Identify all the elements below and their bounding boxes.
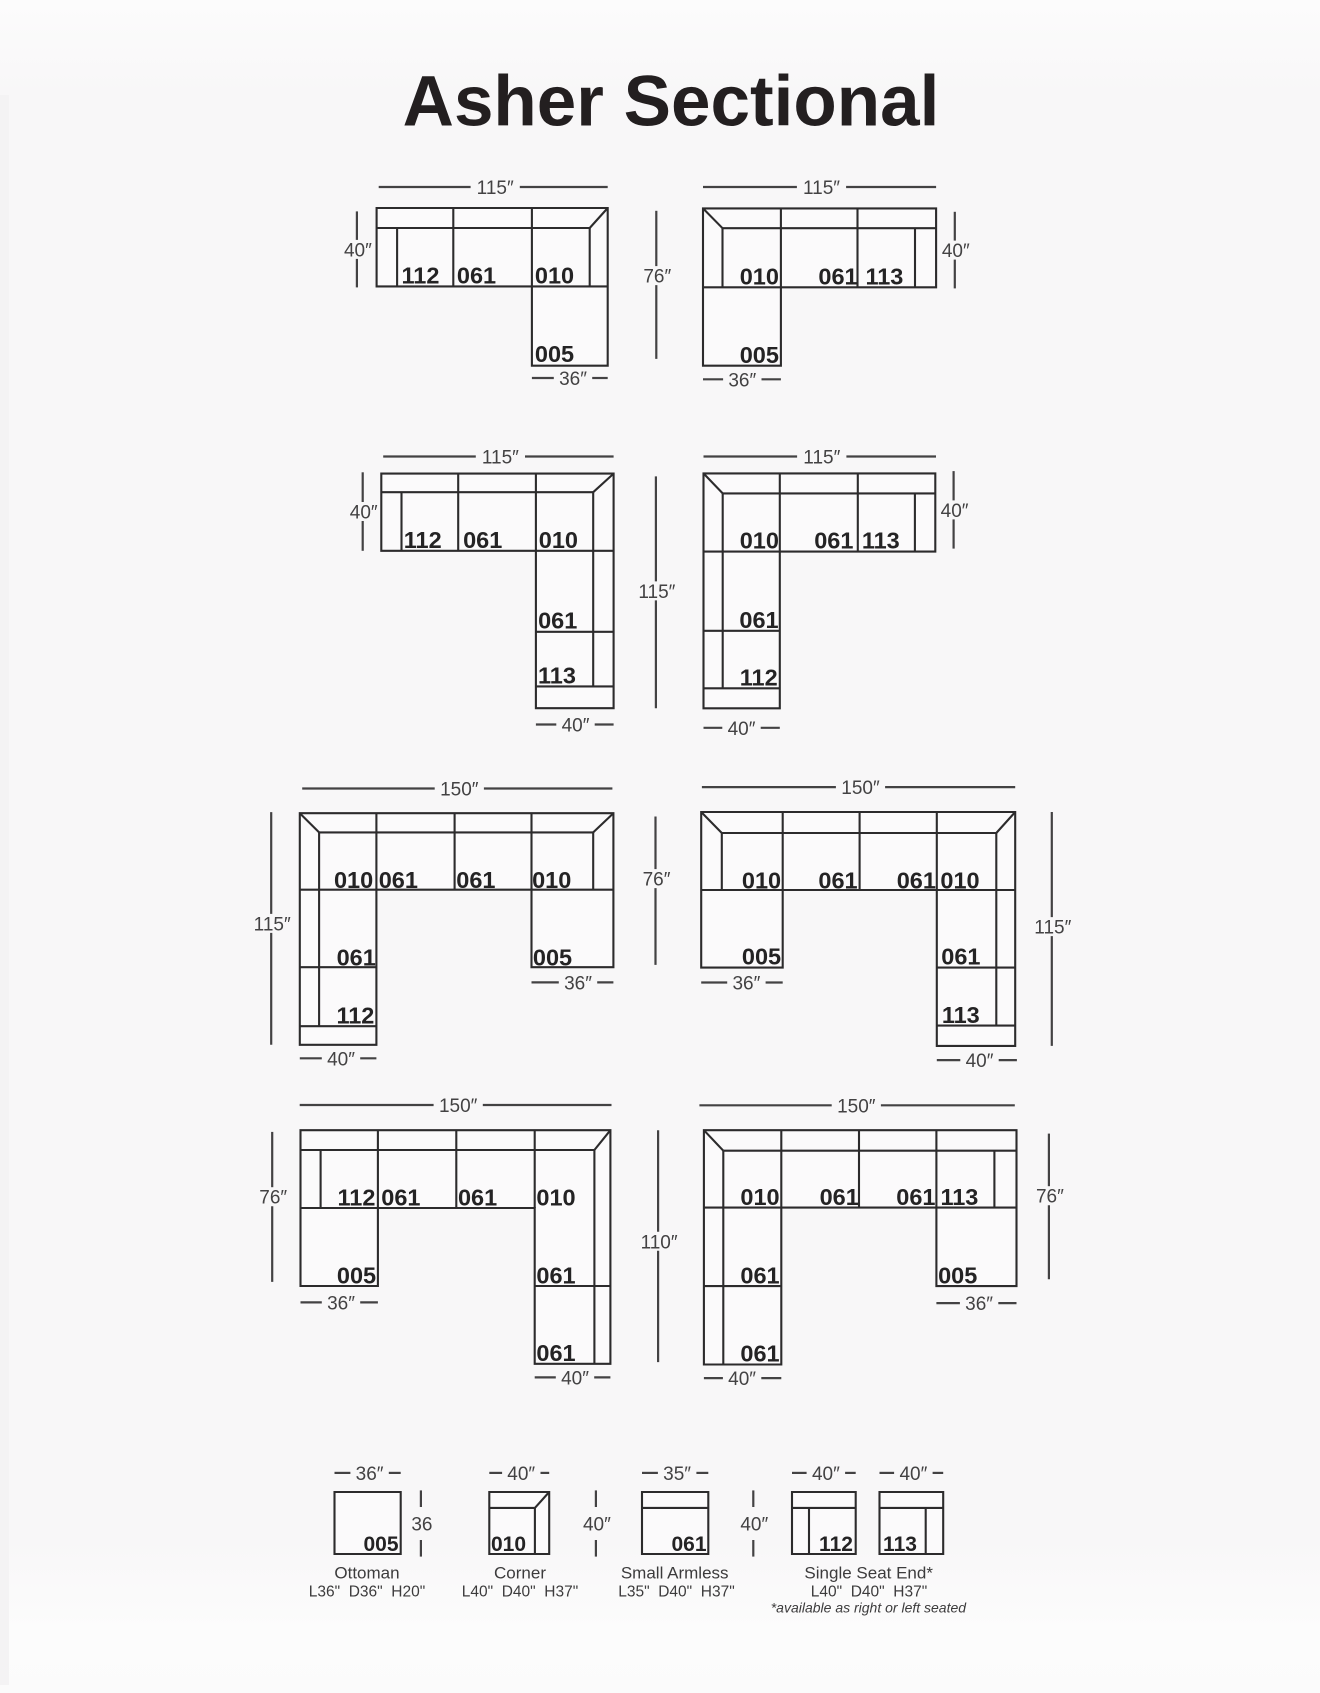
svg-text:40″: 40″	[344, 240, 372, 261]
svg-text:*available as right or left se: *available as right or left seated	[771, 1600, 968, 1616]
svg-text:010: 010	[539, 527, 578, 553]
svg-text:061: 061	[818, 263, 857, 289]
svg-text:40″: 40″	[941, 501, 969, 522]
svg-text:061: 061	[536, 1340, 575, 1366]
svg-text:40″: 40″	[942, 241, 970, 262]
svg-text:005: 005	[337, 1262, 376, 1288]
svg-text:061: 061	[536, 1262, 575, 1288]
svg-text:061: 061	[337, 944, 376, 970]
svg-text:112: 112	[338, 1184, 376, 1210]
svg-text:115″: 115″	[482, 448, 519, 469]
svg-text:010: 010	[334, 867, 373, 893]
svg-text:115″: 115″	[803, 178, 840, 199]
svg-text:115″: 115″	[254, 914, 291, 935]
svg-text:Ottoman: Ottoman	[334, 1564, 399, 1583]
svg-text:113: 113	[940, 1184, 978, 1210]
svg-text:36″: 36″	[559, 369, 587, 390]
svg-text:36″: 36″	[728, 370, 756, 391]
svg-text:113: 113	[883, 1533, 917, 1556]
svg-text:110″: 110″	[641, 1232, 678, 1253]
svg-text:005: 005	[740, 342, 779, 368]
svg-text:010: 010	[535, 262, 574, 288]
svg-text:150″: 150″	[837, 1096, 876, 1117]
svg-text:112: 112	[336, 1002, 374, 1028]
svg-text:76″: 76″	[1036, 1187, 1064, 1208]
svg-text:061: 061	[818, 867, 857, 893]
svg-text:36″: 36″	[732, 974, 760, 995]
svg-text:061: 061	[456, 867, 495, 893]
svg-text:061: 061	[671, 1533, 706, 1556]
svg-text:010: 010	[536, 1184, 575, 1210]
svg-text:112: 112	[740, 664, 778, 690]
svg-text:40″: 40″	[899, 1464, 927, 1485]
svg-text:Corner: Corner	[494, 1564, 546, 1583]
svg-text:150″: 150″	[440, 780, 479, 801]
svg-text:010: 010	[742, 867, 781, 893]
svg-text:010: 010	[740, 1184, 779, 1210]
svg-text:40″: 40″	[740, 1515, 768, 1536]
svg-text:40″: 40″	[728, 1369, 756, 1390]
svg-text:061: 061	[458, 1184, 497, 1210]
svg-text:061: 061	[896, 1184, 935, 1210]
svg-text:115″: 115″	[638, 582, 675, 603]
svg-text:061: 061	[538, 607, 577, 633]
svg-text:061: 061	[379, 867, 418, 893]
svg-text:061: 061	[897, 867, 936, 893]
svg-text:L40" D40" H37": L40" D40" H37"	[462, 1584, 578, 1601]
svg-text:150″: 150″	[439, 1096, 478, 1117]
svg-text:40″: 40″	[350, 503, 378, 524]
svg-text:010: 010	[491, 1533, 526, 1556]
svg-text:112: 112	[819, 1533, 853, 1556]
svg-text:005: 005	[535, 341, 574, 367]
svg-text:113: 113	[538, 662, 576, 688]
svg-text:115″: 115″	[1034, 918, 1071, 939]
svg-text:115″: 115″	[477, 178, 514, 199]
svg-text:005: 005	[533, 944, 572, 970]
svg-text:113: 113	[942, 1002, 980, 1028]
svg-text:36″: 36″	[564, 973, 592, 994]
svg-text:005: 005	[938, 1262, 977, 1288]
svg-text:35″: 35″	[663, 1464, 691, 1485]
svg-text:36″: 36″	[356, 1464, 384, 1485]
svg-text:005: 005	[363, 1533, 398, 1556]
svg-text:40″: 40″	[562, 716, 590, 737]
svg-text:061: 061	[740, 1262, 779, 1288]
svg-text:061: 061	[941, 943, 980, 969]
svg-text:L36" D36" H20": L36" D36" H20"	[309, 1584, 425, 1601]
svg-text:113: 113	[865, 263, 903, 289]
svg-text:Asher Sectional: Asher Sectional	[403, 63, 940, 142]
svg-text:061: 061	[820, 1184, 859, 1210]
svg-text:061: 061	[739, 607, 778, 633]
svg-text:112: 112	[404, 527, 442, 553]
svg-text:010: 010	[740, 528, 779, 554]
svg-text:40″: 40″	[966, 1051, 994, 1072]
svg-text:Small Armless: Small Armless	[621, 1564, 729, 1583]
svg-text:36: 36	[411, 1515, 432, 1536]
svg-text:113: 113	[862, 528, 900, 554]
svg-text:40″: 40″	[507, 1464, 535, 1485]
svg-text:40″: 40″	[728, 719, 756, 740]
svg-text:36″: 36″	[965, 1294, 993, 1315]
svg-text:061: 061	[457, 262, 496, 288]
svg-text:061: 061	[814, 528, 853, 554]
svg-text:76″: 76″	[643, 870, 671, 891]
svg-text:112: 112	[402, 262, 440, 288]
svg-text:40″: 40″	[812, 1464, 840, 1485]
svg-text:005: 005	[742, 943, 781, 969]
svg-text:115″: 115″	[803, 448, 840, 469]
svg-text:061: 061	[463, 527, 502, 553]
svg-text:40″: 40″	[583, 1515, 611, 1536]
svg-text:76″: 76″	[259, 1188, 287, 1209]
svg-text:40″: 40″	[327, 1049, 355, 1070]
svg-text:010: 010	[940, 867, 979, 893]
svg-text:Single Seat End*: Single Seat End*	[804, 1564, 933, 1583]
svg-text:L40" D40" H37": L40" D40" H37"	[811, 1584, 927, 1601]
svg-text:061: 061	[740, 1340, 779, 1366]
svg-text:36″: 36″	[327, 1293, 355, 1314]
svg-text:76″: 76″	[643, 267, 671, 288]
svg-text:010: 010	[740, 263, 779, 289]
svg-text:L35" D40" H37": L35" D40" H37"	[618, 1584, 734, 1601]
svg-text:010: 010	[532, 867, 571, 893]
svg-text:40″: 40″	[561, 1368, 589, 1389]
svg-text:061: 061	[381, 1184, 420, 1210]
svg-text:150″: 150″	[841, 778, 880, 799]
